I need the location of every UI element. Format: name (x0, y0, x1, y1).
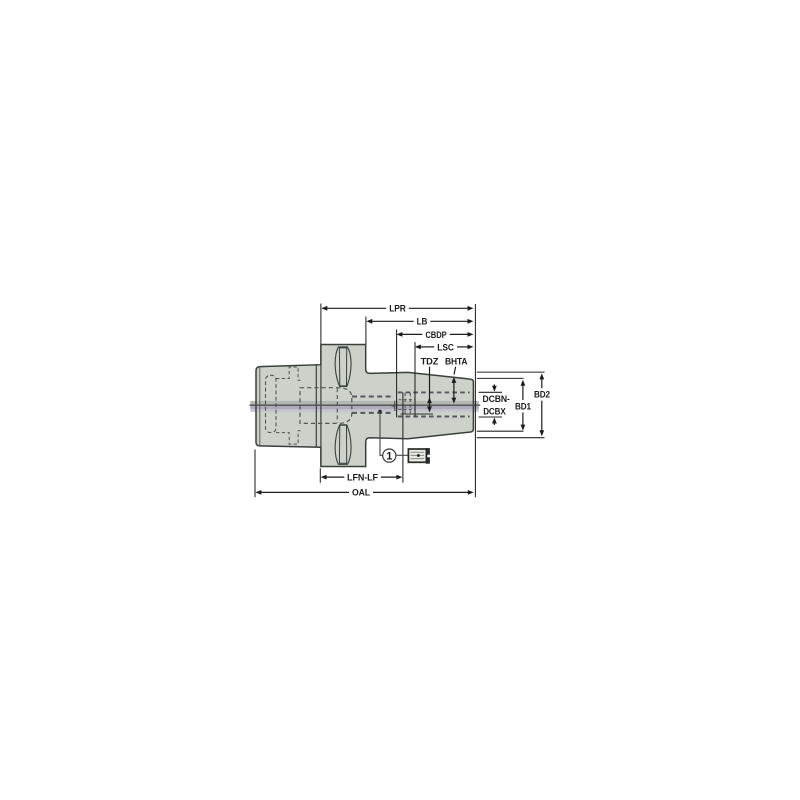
svg-text:DCBX: DCBX (483, 406, 506, 417)
svg-text:BHTA: BHTA (445, 357, 468, 368)
svg-text:CBDP: CBDP (425, 330, 447, 341)
svg-text:LFN-LF: LFN-LF (347, 472, 378, 483)
svg-text:DCBN-: DCBN- (483, 394, 510, 405)
svg-text:OAL: OAL (352, 488, 370, 499)
svg-text:BD2: BD2 (534, 390, 550, 401)
svg-text:LB: LB (417, 317, 428, 328)
svg-text:1: 1 (386, 451, 392, 463)
svg-text:LSC: LSC (437, 342, 454, 353)
svg-text:TDZ: TDZ (421, 357, 439, 368)
svg-text:BD1: BD1 (515, 402, 532, 413)
svg-text:LPR: LPR (389, 304, 406, 315)
